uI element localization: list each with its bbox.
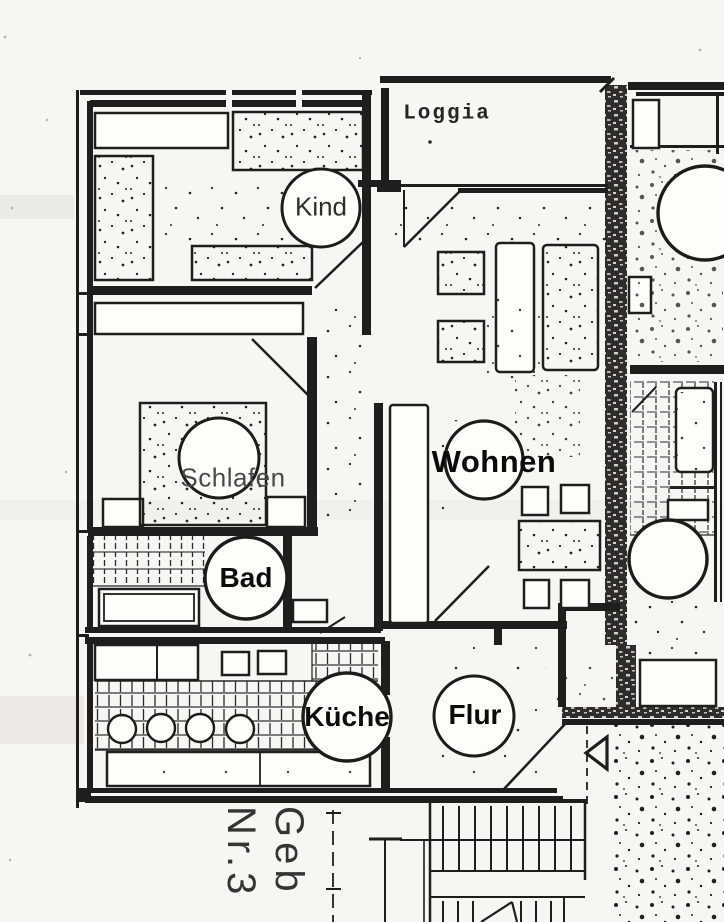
room-label-bad: Bad	[220, 562, 273, 594]
room-label-loggia: Loggia	[403, 103, 491, 126]
scan-dot	[428, 140, 432, 144]
room-label-schlafen: Schlafen	[180, 463, 285, 494]
entrance-arrow-icon	[586, 737, 607, 769]
room-label-wohnen: Wohnen	[432, 444, 557, 480]
building-label: Geb Nr.3	[217, 806, 313, 899]
room-label-kueche: Küche	[304, 701, 390, 733]
room-label-kind: Kind	[295, 192, 347, 223]
room-label-flur: Flur	[449, 699, 502, 731]
building-label-line1: Geb	[265, 806, 313, 899]
floor-plan-page: Loggia Kind Wohnen Schlafen Bad Küche Fl…	[0, 0, 724, 922]
floor-plan-drawing	[0, 0, 724, 922]
building-label-line2: Nr.3	[217, 806, 265, 899]
